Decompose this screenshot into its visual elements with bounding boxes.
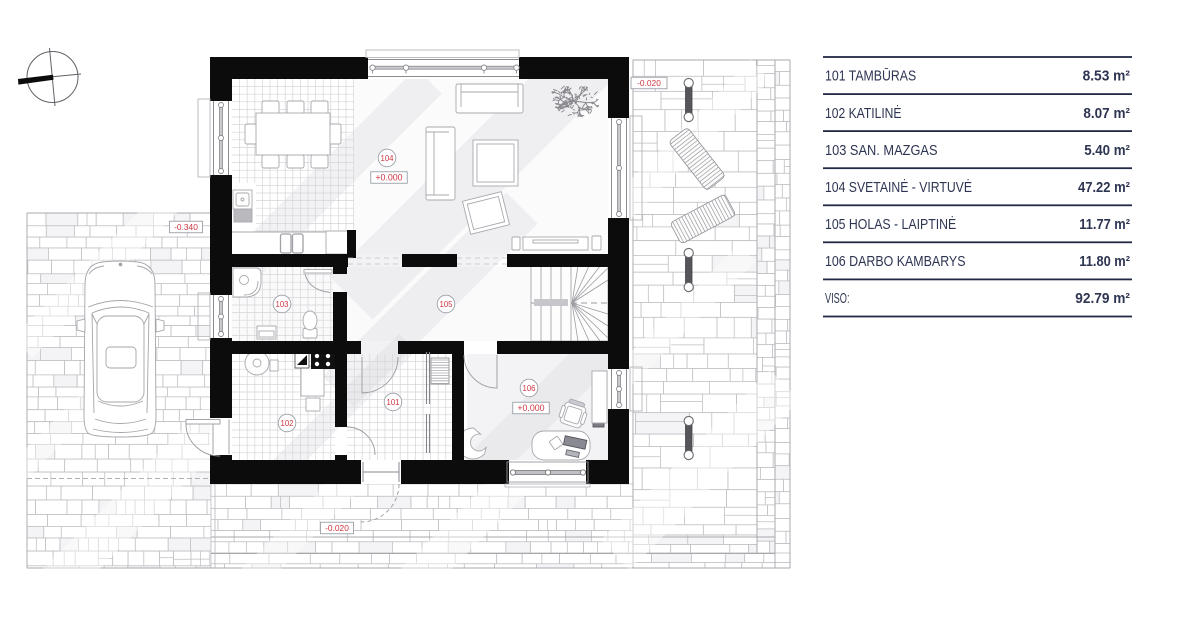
svg-text:-0.340: -0.340 [174, 222, 198, 232]
svg-text:8.53 m²: 8.53 m² [1083, 69, 1131, 85]
svg-text:105 HOLAS - LAIPTINĖ: 105 HOLAS - LAIPTINĖ [825, 215, 956, 233]
svg-text:106: 106 [522, 384, 535, 393]
svg-text:92.79 m²: 92.79 m² [1075, 291, 1130, 307]
svg-text:47.22 m²: 47.22 m² [1078, 180, 1130, 196]
svg-text:-0.020: -0.020 [325, 523, 349, 533]
svg-text:103: 103 [275, 300, 288, 309]
svg-text:102 KATILINĖ: 102 KATILINĖ [825, 104, 902, 122]
svg-text:101: 101 [386, 398, 399, 407]
svg-text:103 SAN. MAZGAS: 103 SAN. MAZGAS [825, 143, 938, 159]
svg-text:VISO:: VISO: [825, 291, 850, 307]
svg-text:101 TAMBŪRAS: 101 TAMBŪRAS [825, 69, 916, 85]
svg-text:5.40 m²: 5.40 m² [1084, 143, 1130, 159]
svg-text:8.07 m²: 8.07 m² [1083, 106, 1130, 122]
svg-text:104 SVETAINĖ - VIRTUVĖ: 104 SVETAINĖ - VIRTUVĖ [825, 178, 972, 196]
svg-text:11.77 m²: 11.77 m² [1079, 217, 1130, 233]
svg-text:105: 105 [439, 300, 453, 309]
svg-text:11.80 m²: 11.80 m² [1079, 254, 1130, 270]
svg-text:+0.000: +0.000 [517, 403, 544, 413]
svg-text:+0.000: +0.000 [375, 173, 402, 183]
svg-text:102: 102 [280, 419, 293, 428]
svg-text:104: 104 [380, 154, 394, 163]
svg-text:-0.020: -0.020 [637, 78, 661, 88]
svg-text:106 DARBO KAMBARYS: 106 DARBO KAMBARYS [825, 254, 966, 270]
